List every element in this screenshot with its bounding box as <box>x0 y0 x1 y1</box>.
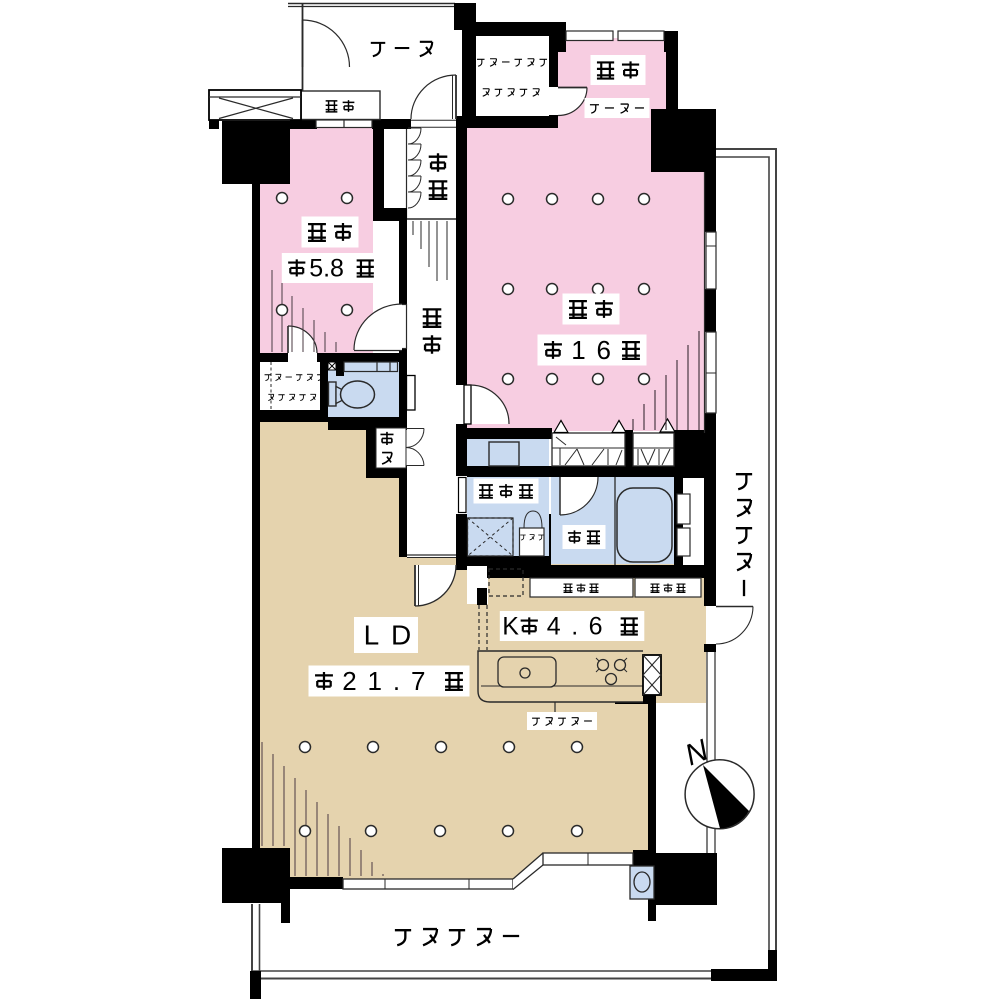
svg-text:4.6: 4.6 <box>547 613 613 641</box>
svg-text:16: 16 <box>571 335 622 365</box>
svg-text:LD: LD <box>364 620 423 651</box>
svg-text:21.7: 21.7 <box>342 666 436 696</box>
svg-text:5.8: 5.8 <box>309 255 344 283</box>
svg-text:K: K <box>502 613 519 641</box>
